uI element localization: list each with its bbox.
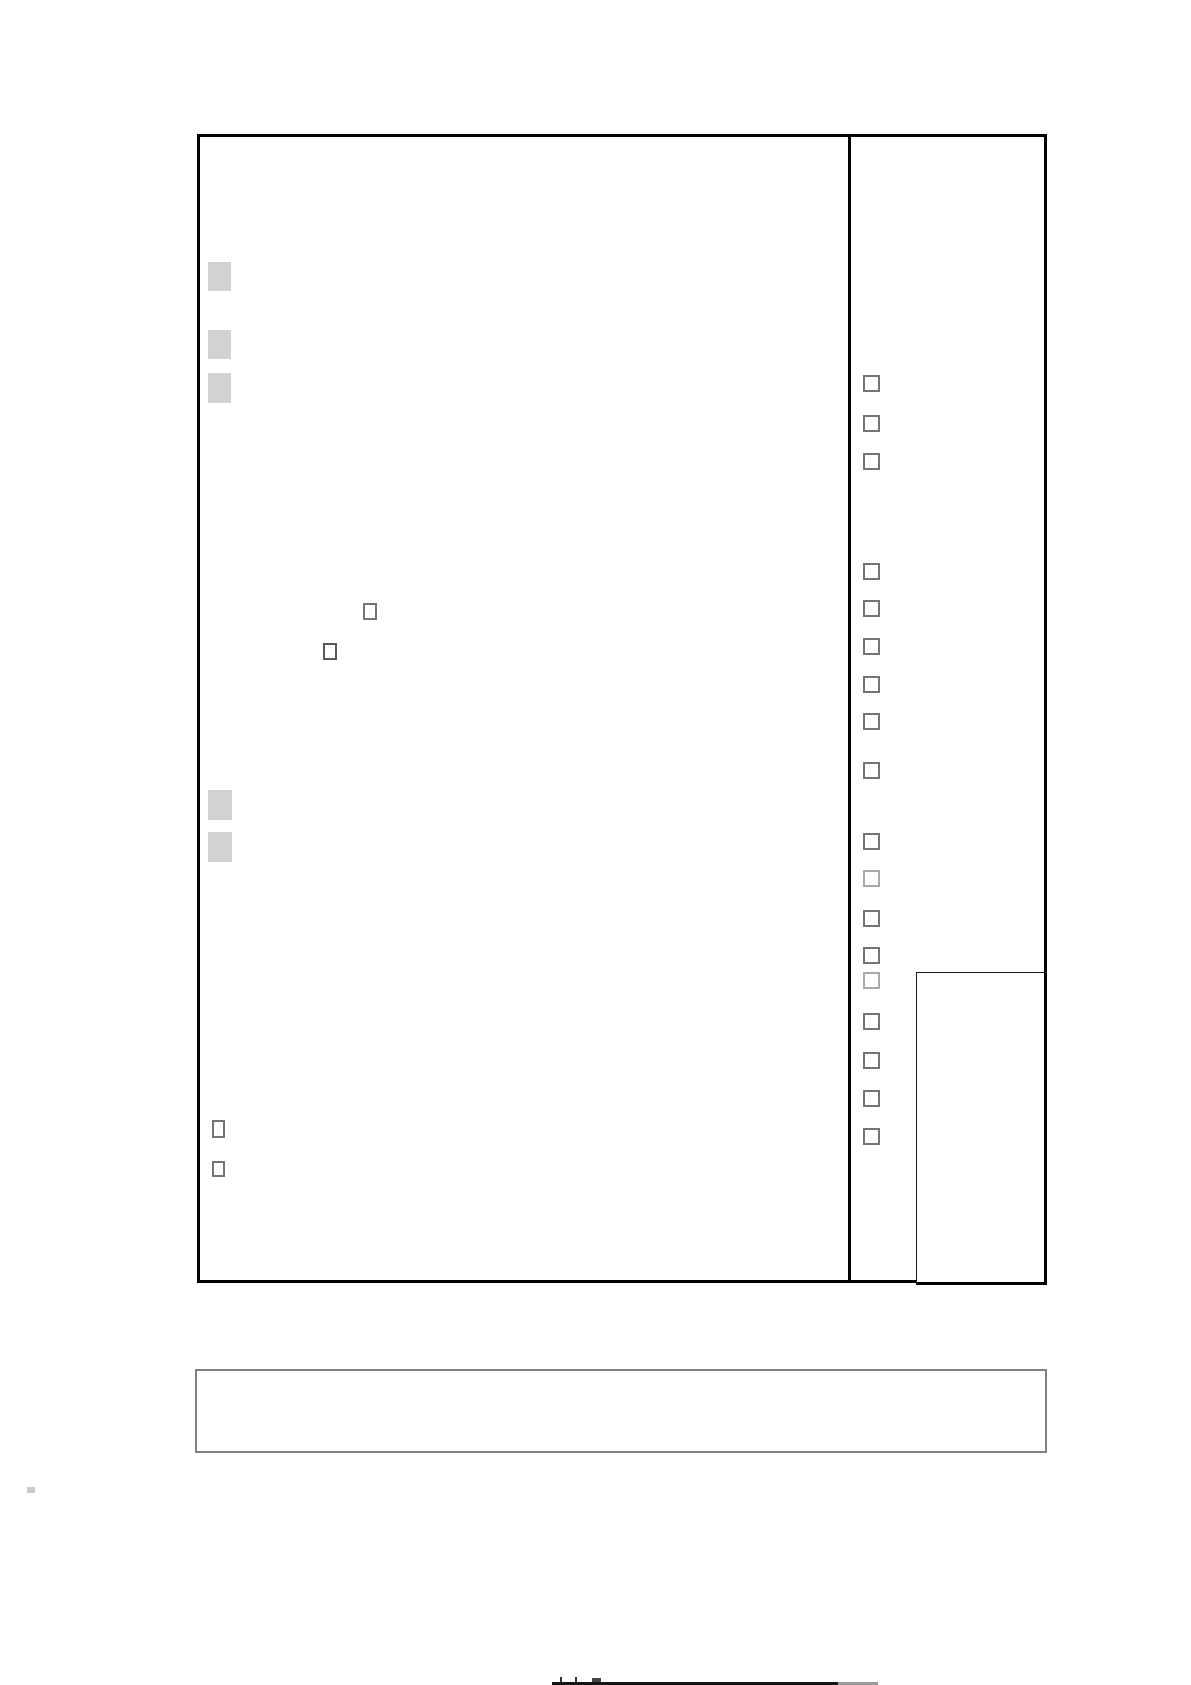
right-column-checkbox[interactable] <box>863 1090 880 1107</box>
form-page <box>0 0 1191 1685</box>
gray-placeholder-square <box>208 790 232 820</box>
right-column-checkbox[interactable] <box>863 947 880 964</box>
right-column-checkbox[interactable] <box>863 1128 880 1145</box>
right-column-checkbox[interactable] <box>863 415 880 432</box>
inline-checkbox[interactable] <box>323 643 337 660</box>
form-column-divider <box>848 134 851 1283</box>
bottom-note-box <box>195 1369 1047 1453</box>
right-column-checkbox[interactable] <box>863 972 880 989</box>
inline-checkbox[interactable] <box>363 603 377 620</box>
right-column-checkbox[interactable] <box>863 713 880 730</box>
right-column-checkbox[interactable] <box>863 1052 880 1069</box>
gray-placeholder-square <box>208 373 231 403</box>
footer-checkbox[interactable] <box>212 1120 225 1138</box>
footer-checkbox[interactable] <box>212 1161 225 1177</box>
right-column-checkbox[interactable] <box>863 375 880 392</box>
page-edge-artifact <box>592 1678 601 1682</box>
gray-placeholder-square <box>208 262 231 291</box>
right-column-checkbox[interactable] <box>863 638 880 655</box>
right-column-checkbox[interactable] <box>863 1013 880 1030</box>
page-edge-artifact <box>27 1487 35 1493</box>
page-edge-artifact <box>575 1677 577 1682</box>
right-column-checkbox[interactable] <box>863 833 880 850</box>
gray-placeholder-square <box>208 330 231 359</box>
right-column-checkbox[interactable] <box>863 910 880 927</box>
right-column-checkbox[interactable] <box>863 762 880 779</box>
right-column-checkbox[interactable] <box>863 870 880 887</box>
page-edge-artifact <box>560 1677 562 1682</box>
bottom-right-nested-box <box>916 972 1047 1285</box>
right-column-checkbox[interactable] <box>863 676 880 693</box>
right-column-checkbox[interactable] <box>863 563 880 580</box>
gray-placeholder-square <box>208 832 232 862</box>
right-column-checkbox[interactable] <box>863 453 880 470</box>
right-column-checkbox[interactable] <box>863 600 880 617</box>
